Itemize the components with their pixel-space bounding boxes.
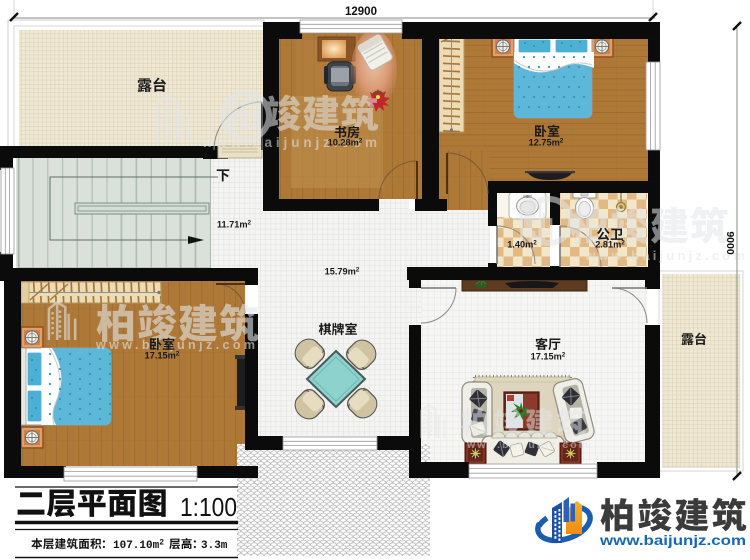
svg-text:107.10m2: 107.10m2 bbox=[113, 539, 164, 553]
svg-text:11.71m2: 11.71m2 bbox=[217, 220, 252, 230]
svg-text:1.40m2: 1.40m2 bbox=[507, 240, 537, 250]
svg-text:17.15m2: 17.15m2 bbox=[145, 351, 180, 361]
svg-text:9000: 9000 bbox=[724, 231, 736, 255]
svg-text:12.75m2: 12.75m2 bbox=[529, 138, 564, 148]
svg-text:www.baijunjz.com: www.baijunjz.com bbox=[599, 532, 746, 548]
svg-text:12900: 12900 bbox=[345, 6, 377, 18]
svg-text:17.15m2: 17.15m2 bbox=[531, 352, 566, 362]
svg-text:10.28m2: 10.28m2 bbox=[328, 138, 363, 148]
svg-text:3.3m: 3.3m bbox=[201, 540, 228, 552]
svg-text:2.81m2: 2.81m2 bbox=[595, 240, 625, 250]
svg-text:1:100: 1:100 bbox=[180, 492, 237, 522]
svg-text:15.79m2: 15.79m2 bbox=[325, 267, 360, 277]
